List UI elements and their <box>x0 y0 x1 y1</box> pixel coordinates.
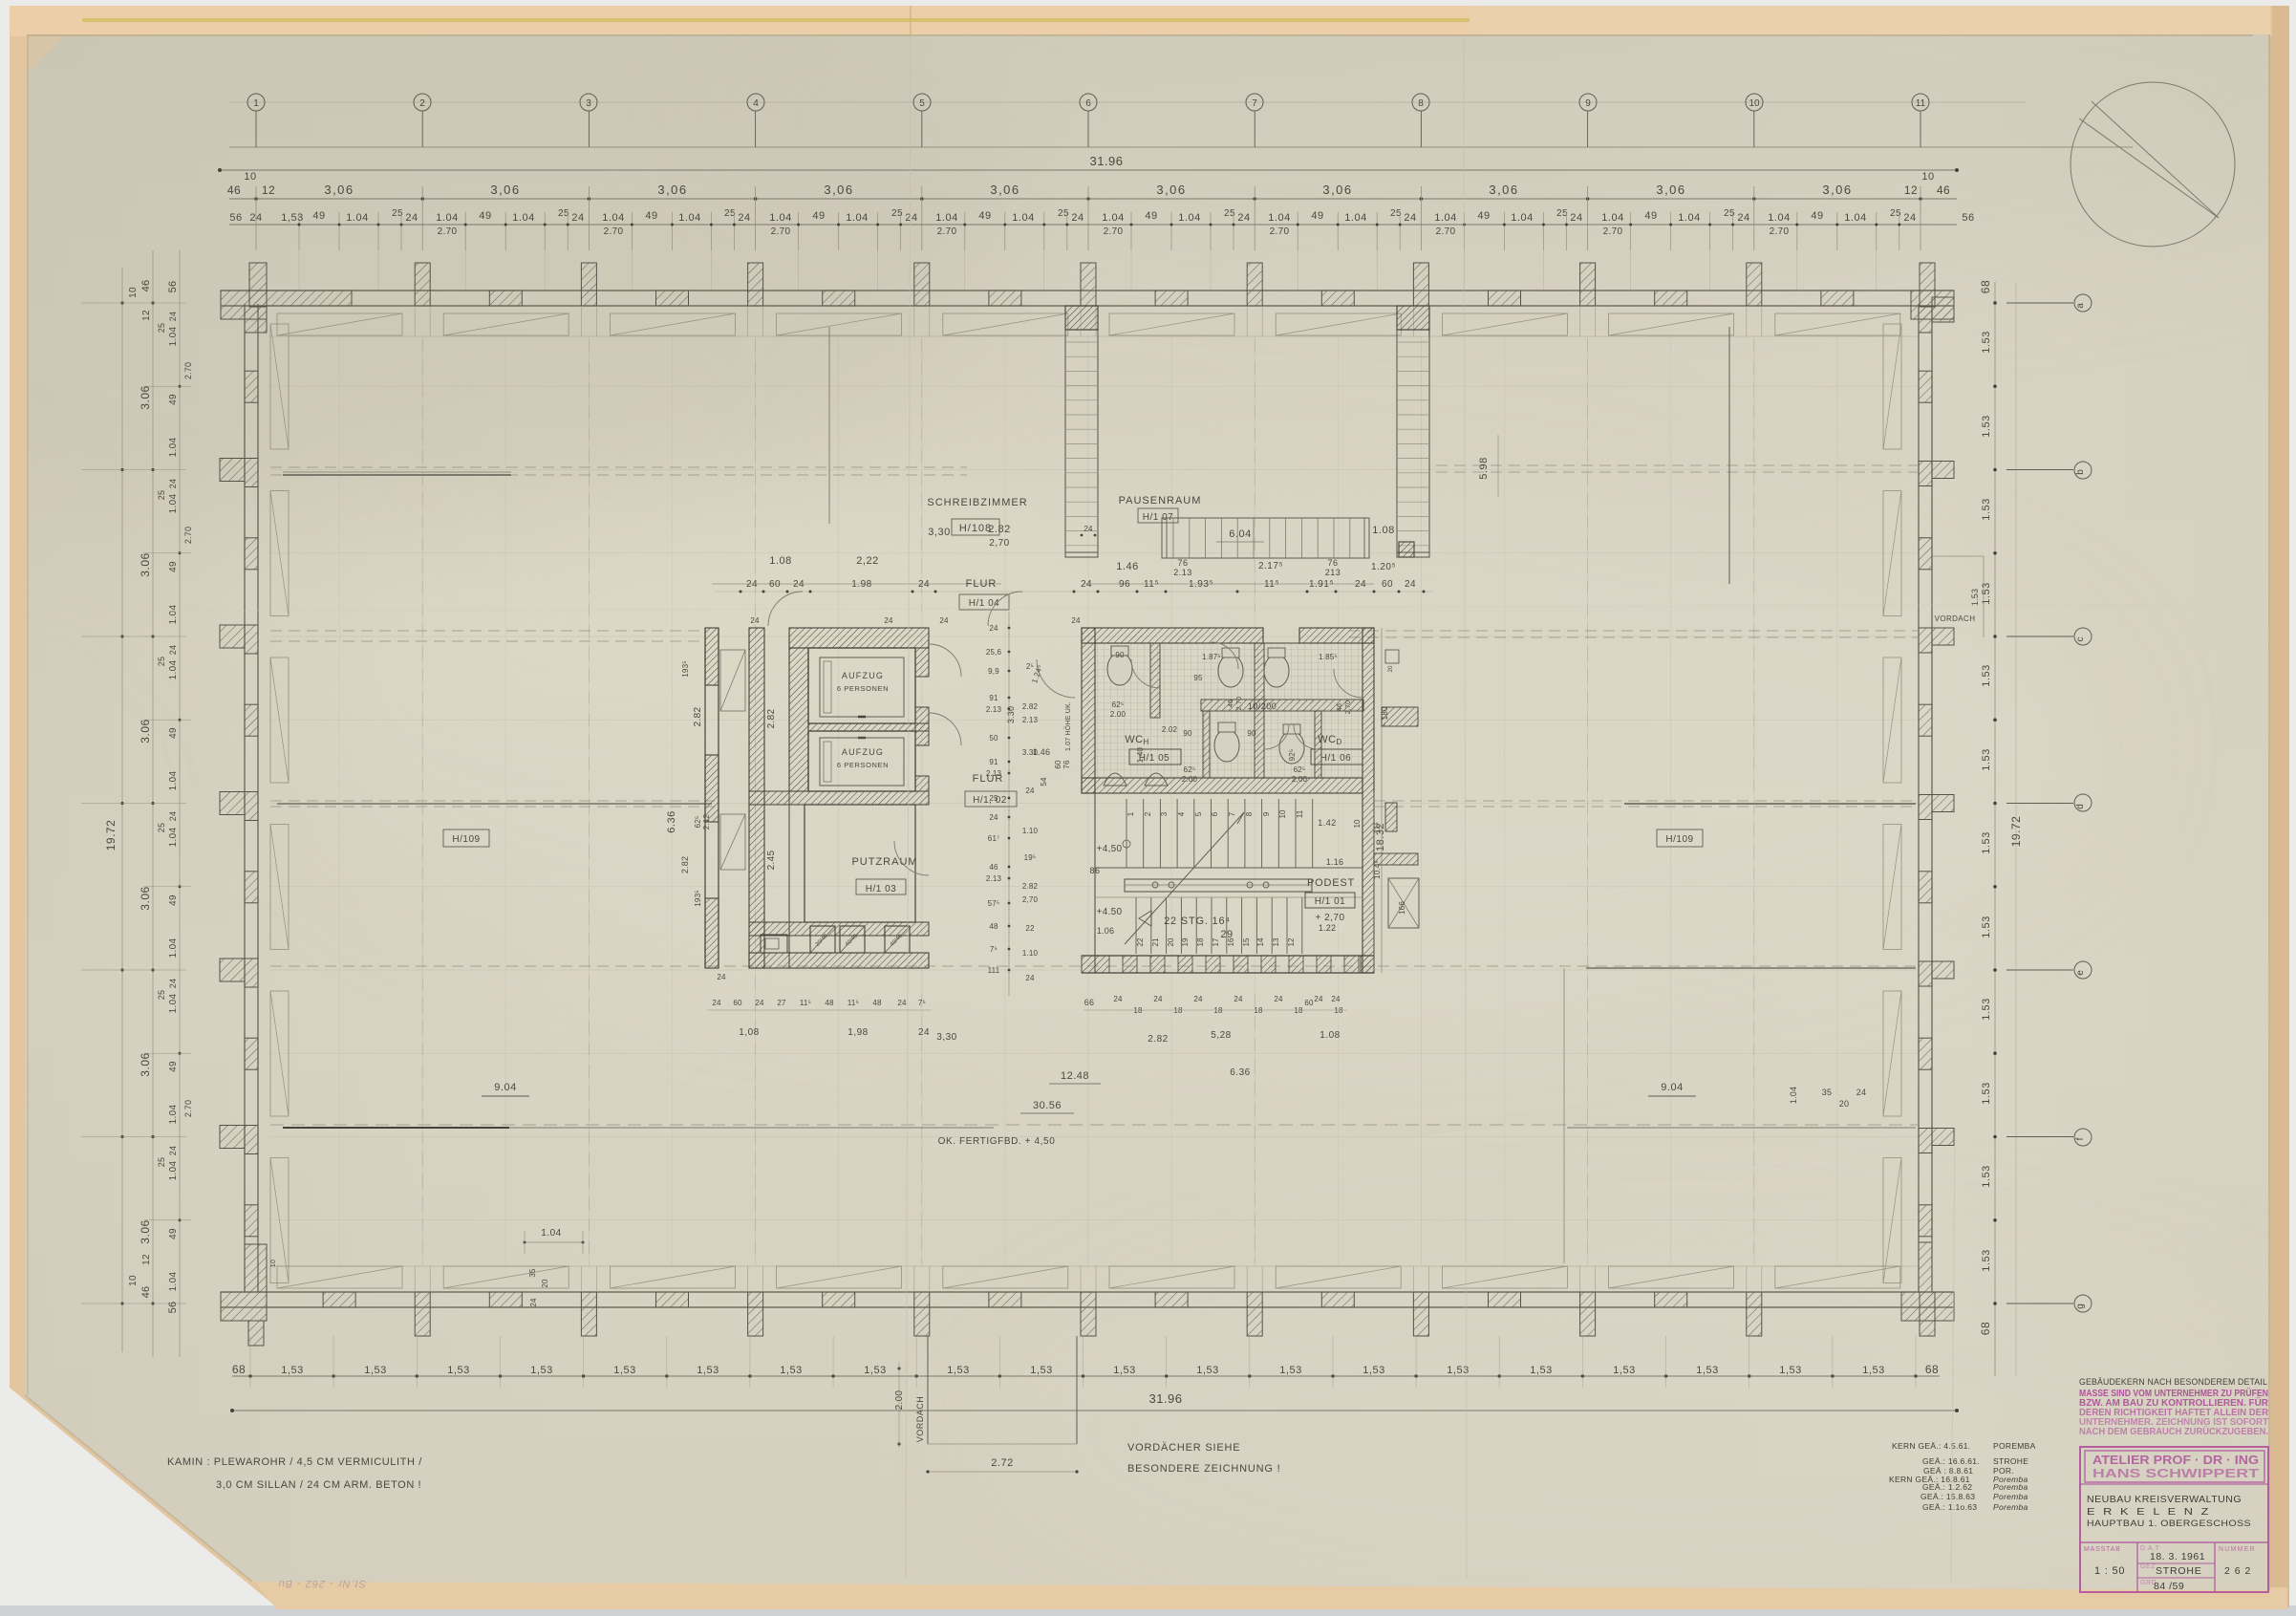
svg-text:29: 29 <box>1220 929 1233 940</box>
svg-text:1,53: 1,53 <box>281 212 303 224</box>
svg-text:2.70: 2.70 <box>604 226 624 237</box>
svg-text:56: 56 <box>1962 212 1974 224</box>
svg-text:1.04: 1.04 <box>168 938 179 959</box>
svg-text:60: 60 <box>1304 999 1314 1007</box>
svg-text:1.53: 1.53 <box>1981 748 1992 770</box>
svg-text:VORDÄCHER SIEHE: VORDÄCHER SIEHE <box>1127 1442 1240 1454</box>
svg-text:6 PERSONEN: 6 PERSONEN <box>837 684 889 693</box>
svg-text:AUFZUG: AUFZUG <box>842 747 884 757</box>
svg-text:2: 2 <box>1144 811 1152 816</box>
svg-text:18: 18 <box>1173 1006 1183 1015</box>
svg-text:1.42: 1.42 <box>1318 818 1337 828</box>
svg-text:24: 24 <box>571 212 584 224</box>
svg-text:96: 96 <box>1119 579 1130 590</box>
svg-text:H/109: H/109 <box>452 834 480 845</box>
svg-text:2.82: 2.82 <box>1022 882 1039 891</box>
svg-text:a: a <box>2075 303 2086 309</box>
svg-text:76: 76 <box>1177 558 1188 568</box>
svg-text:90: 90 <box>1247 729 1256 738</box>
svg-text:3: 3 <box>1160 811 1169 816</box>
svg-text:1.40: 1.40 <box>1136 746 1145 763</box>
svg-text:1.53: 1.53 <box>1981 331 1992 353</box>
svg-text:2.70: 2.70 <box>438 226 458 237</box>
svg-text:76: 76 <box>1062 760 1071 769</box>
svg-text:22: 22 <box>1025 924 1035 933</box>
svg-text:14: 14 <box>1256 937 1265 946</box>
svg-text:24: 24 <box>746 579 758 590</box>
svg-text:24: 24 <box>168 645 178 655</box>
svg-text:46: 46 <box>140 1286 152 1299</box>
svg-text:24: 24 <box>755 999 764 1007</box>
svg-text:2.82: 2.82 <box>693 707 703 727</box>
svg-text:1.04: 1.04 <box>168 494 179 514</box>
svg-text:PODEST: PODEST <box>1307 877 1355 889</box>
svg-text:STROHE: STROHE <box>1993 1456 2028 1466</box>
svg-text:1,53: 1,53 <box>281 1365 303 1376</box>
svg-text:24: 24 <box>918 579 930 590</box>
svg-text:49: 49 <box>168 394 179 405</box>
svg-text:1.04: 1.04 <box>678 212 700 224</box>
svg-text:30.56: 30.56 <box>1033 1100 1062 1111</box>
svg-text:1.04: 1.04 <box>1268 212 1290 224</box>
svg-text:10: 10 <box>1921 171 1934 183</box>
svg-text:VORDACH: VORDACH <box>1935 614 1976 623</box>
svg-text:11⁵: 11⁵ <box>800 999 811 1007</box>
svg-text:3,30: 3,30 <box>936 1032 956 1043</box>
svg-text:24: 24 <box>750 616 760 625</box>
svg-text:24: 24 <box>168 1146 178 1155</box>
svg-text:f: f <box>2075 1137 2086 1140</box>
svg-text:1,08: 1,08 <box>739 1027 759 1038</box>
svg-text:25: 25 <box>1724 208 1735 219</box>
svg-text:3.06: 3.06 <box>139 719 152 743</box>
svg-text:2.17⁵: 2.17⁵ <box>1258 561 1283 571</box>
svg-text:1.04: 1.04 <box>1434 212 1456 224</box>
svg-text:1.93⁵: 1.93⁵ <box>1189 579 1213 590</box>
svg-text:68: 68 <box>1979 280 1992 293</box>
svg-text:25: 25 <box>157 490 166 500</box>
svg-text:3,06: 3,06 <box>324 183 354 197</box>
svg-text:3: 3 <box>586 98 591 109</box>
svg-text:1.08: 1.08 <box>1372 525 1394 536</box>
svg-text:11⁵: 11⁵ <box>1144 579 1159 590</box>
svg-text:35: 35 <box>1822 1088 1832 1097</box>
svg-text:1,53: 1,53 <box>1862 1365 1884 1376</box>
svg-text:1.04: 1.04 <box>1844 212 1866 224</box>
svg-text:1.22: 1.22 <box>1319 923 1336 933</box>
svg-text:1,53: 1,53 <box>1363 1365 1384 1376</box>
svg-text:2: 2 <box>419 98 425 109</box>
svg-text:57⁵: 57⁵ <box>988 899 1000 908</box>
svg-text:6: 6 <box>1211 811 1219 816</box>
svg-text:2.13: 2.13 <box>1173 568 1192 577</box>
svg-text:24: 24 <box>1234 995 1243 1003</box>
svg-text:11⁵: 11⁵ <box>848 999 859 1007</box>
svg-text:2.70: 2.70 <box>1270 226 1290 237</box>
svg-text:10: 10 <box>1749 98 1760 109</box>
svg-text:NEUBAU KREISVERWALTUNG: NEUBAU KREISVERWALTUNG <box>2087 1495 2242 1505</box>
svg-text:PAUSENRAUM: PAUSENRAUM <box>1119 495 1202 506</box>
svg-text:24: 24 <box>897 999 907 1007</box>
svg-text:1.53: 1.53 <box>1970 589 1980 606</box>
svg-text:15: 15 <box>1242 937 1251 946</box>
svg-text:1.53: 1.53 <box>1981 498 1992 520</box>
svg-text:KERN GEÄ.: 4.5.61.: KERN GEÄ.: 4.5.61. <box>1892 1441 1970 1451</box>
svg-text:91: 91 <box>989 694 998 702</box>
svg-text:4: 4 <box>753 98 759 109</box>
svg-text:68: 68 <box>232 1363 246 1376</box>
svg-text:3.06: 3.06 <box>139 1219 152 1243</box>
svg-text:GEZ: GEZ <box>2140 1563 2156 1570</box>
svg-text:GEÄ.: 1.2.62: GEÄ.: 1.2.62 <box>1922 1482 1972 1492</box>
svg-text:10: 10 <box>1278 809 1287 818</box>
svg-text:GEÄ.: 15.8.63: GEÄ.: 15.8.63 <box>1920 1492 1975 1501</box>
svg-text:+4,50: +4,50 <box>1097 844 1123 854</box>
svg-text:POREMBA: POREMBA <box>1993 1441 2036 1451</box>
svg-text:1.04: 1.04 <box>512 212 534 224</box>
svg-text:46: 46 <box>1337 703 1343 711</box>
svg-text:1.04: 1.04 <box>846 212 868 224</box>
svg-text:48: 48 <box>872 999 882 1007</box>
svg-text:5,28: 5,28 <box>1211 1030 1231 1041</box>
svg-text:27: 27 <box>777 999 786 1007</box>
svg-text:1,98: 1,98 <box>848 1027 868 1038</box>
svg-text:1.04: 1.04 <box>436 212 458 224</box>
svg-text:24: 24 <box>1314 995 1323 1003</box>
svg-text:19.72: 19.72 <box>104 820 118 851</box>
svg-text:2.82: 2.82 <box>1148 1034 1168 1045</box>
svg-text:46: 46 <box>227 183 241 197</box>
svg-text:H/1 01: H/1 01 <box>1315 896 1345 907</box>
svg-text:2,22: 2,22 <box>856 555 878 567</box>
svg-text:24: 24 <box>712 999 721 1007</box>
svg-text:1,53: 1,53 <box>1279 1365 1301 1376</box>
svg-text:1.87⁵: 1.87⁵ <box>1202 653 1221 661</box>
svg-text:49: 49 <box>168 561 179 572</box>
svg-text:12: 12 <box>1904 183 1918 197</box>
svg-text:ATELIER PROF · DR · ING: ATELIER PROF · DR · ING <box>2092 1454 2259 1467</box>
svg-text:12: 12 <box>141 310 152 321</box>
svg-text:6.04: 6.04 <box>1229 528 1251 540</box>
svg-text:1.53: 1.53 <box>1981 998 1992 1020</box>
svg-text:18: 18 <box>1213 1006 1223 1015</box>
svg-text:54: 54 <box>1040 777 1048 786</box>
svg-text:49: 49 <box>645 210 657 222</box>
svg-text:19: 19 <box>1181 937 1190 946</box>
svg-text:1.10: 1.10 <box>1022 949 1039 958</box>
svg-text:b: b <box>2075 469 2086 475</box>
svg-text:3,06: 3,06 <box>824 183 853 197</box>
svg-text:18: 18 <box>1334 1006 1343 1015</box>
svg-text:9: 9 <box>1585 98 1591 109</box>
svg-text:1.04: 1.04 <box>168 994 179 1014</box>
svg-text:90: 90 <box>1183 729 1192 738</box>
svg-text:24: 24 <box>884 616 893 625</box>
svg-text:24: 24 <box>1355 579 1366 590</box>
svg-text:2.00: 2.00 <box>894 1390 905 1411</box>
svg-text:25: 25 <box>157 990 166 1000</box>
svg-text:49: 49 <box>479 210 491 222</box>
svg-text:24: 24 <box>1025 974 1035 982</box>
svg-text:1,53: 1,53 <box>447 1365 469 1376</box>
svg-text:3.06: 3.06 <box>139 552 152 576</box>
svg-text:10: 10 <box>270 1260 277 1267</box>
svg-text:GEBÄUDEKERN NACH BESONDEREM: GEBÄUDEKERN NACH BESONDEREM DETAIL <box>2079 1377 2267 1388</box>
svg-text:49: 49 <box>168 1061 179 1072</box>
svg-text:24: 24 <box>1331 995 1341 1003</box>
svg-text:2.82: 2.82 <box>1022 702 1039 711</box>
svg-text:1.04: 1.04 <box>1511 212 1533 224</box>
svg-text:4: 4 <box>1177 811 1186 816</box>
svg-text:24: 24 <box>1237 212 1250 224</box>
svg-text:24: 24 <box>1274 995 1283 1003</box>
svg-text:1.53: 1.53 <box>1981 831 1992 853</box>
svg-text:24: 24 <box>1856 1088 1866 1097</box>
svg-text:2.70: 2.70 <box>1770 226 1790 237</box>
svg-text:c: c <box>2075 637 2086 642</box>
svg-text:1.08: 1.08 <box>769 555 791 567</box>
svg-text:9.04: 9.04 <box>494 1082 516 1093</box>
svg-text:49: 49 <box>1644 210 1657 222</box>
svg-text:STROHE: STROHE <box>2156 1565 2202 1577</box>
svg-text:E R K E L E N Z: E R K E L E N Z <box>2087 1507 2211 1518</box>
svg-text:25: 25 <box>989 794 998 803</box>
svg-text:24: 24 <box>793 579 805 590</box>
svg-text:AUFZUG: AUFZUG <box>842 671 884 680</box>
svg-text:e: e <box>2075 970 2086 976</box>
svg-text:3,06: 3,06 <box>1489 183 1518 197</box>
svg-text:84 /59: 84 /59 <box>2154 1581 2184 1592</box>
svg-text:1.04: 1.04 <box>1344 212 1366 224</box>
svg-text:1.04: 1.04 <box>168 828 179 848</box>
svg-text:11⁵: 11⁵ <box>1264 579 1279 590</box>
svg-text:MASSTAB: MASSTAB <box>2084 1546 2121 1553</box>
svg-text:10: 10 <box>244 171 256 183</box>
svg-text:1.04: 1.04 <box>1012 212 1034 224</box>
svg-text:1.04: 1.04 <box>769 212 791 224</box>
svg-text:10: 10 <box>128 287 139 298</box>
svg-text:11⁵: 11⁵ <box>1373 822 1382 833</box>
svg-text:1.53: 1.53 <box>1981 1165 1992 1187</box>
svg-text:3.06: 3.06 <box>139 886 152 910</box>
svg-text:2.13: 2.13 <box>1022 716 1039 724</box>
svg-text:24: 24 <box>168 312 178 321</box>
svg-text:HAUPTBAU 1. OBERGESCHOSS: HAUPTBAU 1. OBERGESCHOSS <box>2087 1519 2251 1529</box>
svg-text:24: 24 <box>1084 525 1093 533</box>
svg-text:13: 13 <box>1272 937 1280 946</box>
svg-text:1.04: 1.04 <box>168 1105 179 1125</box>
svg-text:1.07 HÖHE UK.: 1.07 HÖHE UK. <box>1064 701 1072 751</box>
svg-text:31.96: 31.96 <box>1089 154 1123 168</box>
svg-text:1.04: 1.04 <box>1601 212 1623 224</box>
svg-text:10: 10 <box>1353 819 1362 828</box>
svg-text:49: 49 <box>168 727 179 739</box>
svg-text:1,53: 1,53 <box>1613 1365 1635 1376</box>
svg-text:56: 56 <box>167 1302 179 1314</box>
svg-text:1,53: 1,53 <box>1196 1365 1218 1376</box>
svg-text:1,53: 1,53 <box>1030 1365 1052 1376</box>
svg-text:12: 12 <box>141 1254 152 1265</box>
svg-text:H/109: H/109 <box>1665 834 1693 845</box>
svg-text:2.70: 2.70 <box>183 527 193 544</box>
svg-text:213: 213 <box>1325 568 1341 577</box>
svg-text:1.04: 1.04 <box>541 1228 561 1239</box>
svg-text:62⁵: 62⁵ <box>694 816 702 829</box>
svg-text:NUMMER: NUMMER <box>2219 1546 2256 1553</box>
svg-text:193⁵: 193⁵ <box>681 660 690 677</box>
svg-text:166: 166 <box>1398 901 1406 915</box>
svg-text:90: 90 <box>1115 651 1125 659</box>
svg-text:10: 10 <box>128 1275 139 1286</box>
svg-text:1: 1 <box>1127 811 1135 816</box>
svg-text:24: 24 <box>168 979 178 988</box>
svg-text:GEÄ.: 16.6.61.: GEÄ.: 16.6.61. <box>1922 1456 1980 1466</box>
svg-text:18: 18 <box>1196 937 1205 946</box>
svg-text:VORDACH: VORDACH <box>915 1396 925 1443</box>
svg-text:24: 24 <box>1025 786 1035 795</box>
svg-text:1.04: 1.04 <box>935 212 957 224</box>
svg-text:46: 46 <box>1937 183 1950 197</box>
svg-text:91: 91 <box>989 758 998 766</box>
svg-text:d: d <box>2075 804 2086 809</box>
svg-text:12: 12 <box>1287 937 1296 946</box>
svg-text:24: 24 <box>905 212 917 224</box>
svg-text:1,53: 1,53 <box>364 1365 386 1376</box>
svg-text:St.Nr - 262 - Bu: St.Nr - 262 - Bu <box>278 1578 366 1589</box>
svg-text:17: 17 <box>1212 937 1220 946</box>
svg-text:60: 60 <box>1382 579 1393 590</box>
svg-text:56: 56 <box>229 212 242 224</box>
svg-text:10.4⁵: 10.4⁵ <box>1373 860 1382 879</box>
svg-text:1.53: 1.53 <box>1981 1249 1992 1271</box>
svg-text:2,70: 2,70 <box>1345 700 1352 714</box>
svg-text:2 6 2: 2 6 2 <box>2224 1565 2251 1577</box>
svg-text:1 : 50: 1 : 50 <box>2094 1565 2125 1577</box>
svg-text:1,53: 1,53 <box>697 1365 719 1376</box>
svg-text:2.70: 2.70 <box>1603 226 1623 237</box>
svg-text:25: 25 <box>891 208 903 219</box>
svg-text:11: 11 <box>1916 98 1926 109</box>
svg-text:+ 2,70: + 2,70 <box>1315 913 1344 923</box>
svg-text:25: 25 <box>1058 208 1069 219</box>
svg-text:1.04: 1.04 <box>346 212 368 224</box>
svg-text:24: 24 <box>1405 579 1416 590</box>
svg-text:2.82: 2.82 <box>988 524 1010 535</box>
svg-text:Poremba: Poremba <box>1993 1502 2028 1512</box>
svg-text:46: 46 <box>989 863 998 872</box>
svg-text:1.04: 1.04 <box>168 1161 179 1181</box>
svg-text:24: 24 <box>939 616 949 625</box>
svg-text:111: 111 <box>988 966 1000 975</box>
svg-text:2,70: 2,70 <box>1236 697 1243 710</box>
svg-text:24: 24 <box>717 973 726 981</box>
svg-text:25: 25 <box>157 657 166 666</box>
svg-text:1,53: 1,53 <box>780 1365 802 1376</box>
svg-text:3.06: 3.06 <box>139 385 152 409</box>
svg-text:18: 18 <box>1254 1006 1263 1015</box>
svg-text:60: 60 <box>733 999 742 1007</box>
svg-text:24: 24 <box>989 813 998 822</box>
svg-text:GEÄ.: 1.1o.63: GEÄ.: 1.1o.63 <box>1922 1502 1977 1512</box>
svg-text:48: 48 <box>989 922 998 931</box>
svg-text:2.13: 2.13 <box>986 769 1002 778</box>
svg-text:49: 49 <box>168 894 179 906</box>
svg-text:2.70: 2.70 <box>1436 226 1456 237</box>
svg-text:1.04: 1.04 <box>168 327 179 347</box>
svg-text:2.82: 2.82 <box>766 709 777 729</box>
svg-text:24: 24 <box>1737 212 1749 224</box>
svg-text:1,53: 1,53 <box>1696 1365 1718 1376</box>
svg-text:18. 3. 1961: 18. 3. 1961 <box>2150 1551 2205 1562</box>
svg-text:7: 7 <box>1252 98 1257 109</box>
svg-text:62⁵: 62⁵ <box>1294 765 1306 774</box>
svg-text:5.98: 5.98 <box>1478 457 1490 479</box>
svg-text:2.45: 2.45 <box>766 851 777 871</box>
svg-text:7⁵: 7⁵ <box>990 945 998 954</box>
svg-text:24: 24 <box>1113 995 1123 1003</box>
svg-text:2,70: 2,70 <box>1022 895 1039 904</box>
svg-text:31.96: 31.96 <box>1148 1391 1182 1406</box>
svg-text:1.08: 1.08 <box>1320 1030 1340 1041</box>
svg-text:2.70: 2.70 <box>183 1100 193 1117</box>
svg-text:2.00: 2.00 <box>1110 710 1127 719</box>
svg-text:22 STG. 16⁴: 22 STG. 16⁴ <box>1164 916 1231 927</box>
svg-text:1.53: 1.53 <box>1981 916 1992 937</box>
svg-text:61⁷: 61⁷ <box>988 834 999 843</box>
svg-text:1.16: 1.16 <box>1326 857 1343 867</box>
svg-text:H/1 03: H/1 03 <box>866 884 896 894</box>
svg-text:1.53: 1.53 <box>1981 1082 1992 1104</box>
svg-text:1.10: 1.10 <box>1022 827 1039 835</box>
svg-text:24: 24 <box>1903 212 1916 224</box>
svg-text:1.04: 1.04 <box>1178 212 1200 224</box>
svg-text:3.06: 3.06 <box>139 1052 152 1076</box>
svg-text:24: 24 <box>529 1298 538 1307</box>
svg-text:6.36: 6.36 <box>1230 1067 1250 1078</box>
svg-text:86: 86 <box>1089 866 1100 875</box>
svg-text:NACH DEM GEBRAUCH ZURÜCKZUG: NACH DEM GEBRAUCH ZURÜCKZUGEBEN. <box>2079 1425 2268 1437</box>
svg-text:1.04: 1.04 <box>168 771 179 791</box>
svg-text:1.04: 1.04 <box>168 1272 179 1292</box>
svg-text:1.04: 1.04 <box>1768 212 1790 224</box>
svg-text:24: 24 <box>1404 212 1416 224</box>
svg-text:46: 46 <box>1228 700 1234 707</box>
svg-text:24: 24 <box>1071 212 1084 224</box>
svg-text:1: 1 <box>253 98 259 109</box>
svg-text:1.53: 1.53 <box>1981 664 1992 686</box>
svg-text:49: 49 <box>1811 210 1823 222</box>
svg-text:2.70: 2.70 <box>771 226 791 237</box>
svg-text:1,53: 1,53 <box>864 1365 886 1376</box>
svg-text:9.04: 9.04 <box>1661 1082 1683 1093</box>
svg-text:95: 95 <box>1193 674 1203 682</box>
svg-text:7: 7 <box>1228 811 1236 816</box>
svg-text:3,06: 3,06 <box>1822 183 1852 197</box>
svg-text:1.04: 1.04 <box>1102 212 1124 224</box>
svg-text:50: 50 <box>989 734 998 743</box>
svg-text:Poremba: Poremba <box>1993 1482 2028 1492</box>
svg-text:+4.50: +4.50 <box>1097 907 1123 917</box>
svg-text:22: 22 <box>1136 937 1145 946</box>
svg-text:5: 5 <box>919 98 925 109</box>
svg-text:1,53: 1,53 <box>1779 1365 1801 1376</box>
svg-text:18: 18 <box>1294 1006 1303 1015</box>
svg-text:1.53: 1.53 <box>1981 582 1992 604</box>
svg-text:1.04: 1.04 <box>168 605 179 625</box>
svg-text:68: 68 <box>1979 1322 1992 1335</box>
svg-text:1.04: 1.04 <box>602 212 624 224</box>
svg-text:21: 21 <box>1151 937 1160 946</box>
